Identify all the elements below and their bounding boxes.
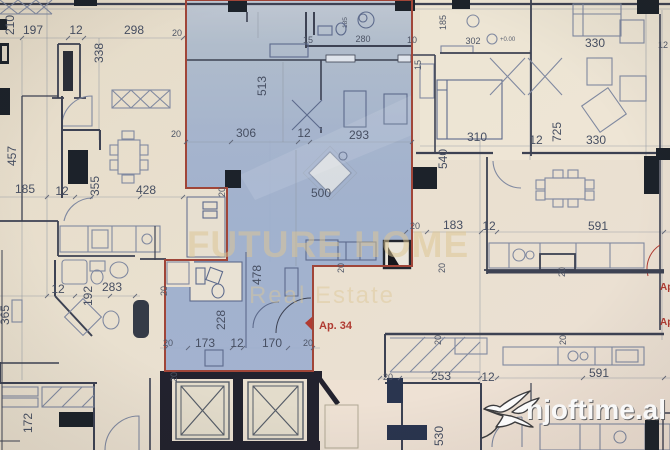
svg-text:njoftime.al: njoftime.al (526, 394, 666, 425)
